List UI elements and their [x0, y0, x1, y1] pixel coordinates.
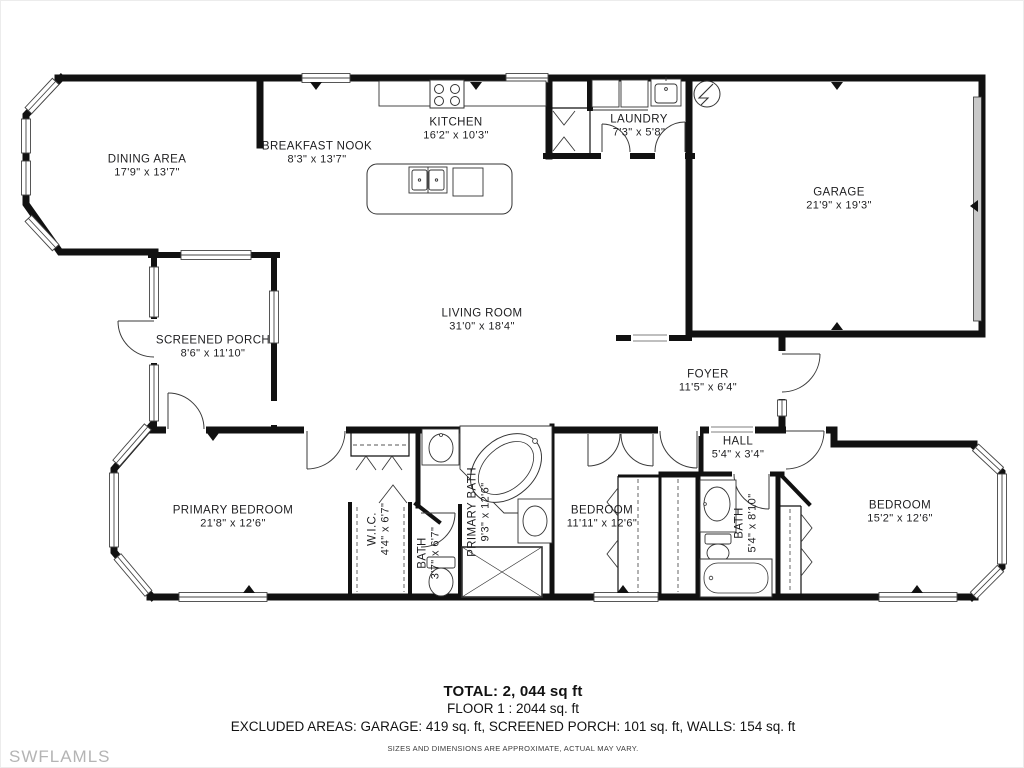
washer-icon: [592, 80, 619, 107]
room-label-bedroom-3: BEDROOM15'2" x 12'6": [867, 500, 933, 525]
porch-side-door: [118, 321, 154, 357]
vanity-sink-icon: [422, 429, 459, 465]
island-sink-icon: [409, 167, 447, 193]
stove-icon: [430, 80, 464, 108]
room-label-bath-2: BATH3'7" x 6'7": [417, 527, 442, 580]
front-door-sidelight: [778, 400, 787, 416]
room-label-breakfast-nook: BREAKFAST NOOK8'3" x 13'7": [262, 141, 372, 166]
island-cooktop: [453, 168, 483, 196]
room-label-hall: HALL5'4" x 3'4": [712, 436, 765, 461]
room-label-kitchen: KITCHEN16'2" x 10'3": [423, 117, 489, 142]
room-label-bedroom-2: BEDROOM11'11" x 12'6": [567, 505, 637, 530]
floor-area-text: FLOOR 1 : 2044 sq. ft: [1, 701, 1024, 716]
room-label-laundry: LAUNDRY7'3" x 5'8": [610, 114, 668, 139]
laundry-fixtures: [592, 77, 681, 110]
laundry-sink-icon: [651, 77, 681, 106]
room-label-garage: GARAGE21'9" x 19'3": [806, 187, 872, 212]
total-area-text: TOTAL: 2, 044 sq ft: [1, 683, 1024, 700]
hall-bathtub-icon: [700, 559, 772, 597]
hall-toilet-icon: [705, 534, 731, 562]
bedroom2-closet-doors: [588, 434, 653, 466]
hall-bath-sink-icon: [700, 480, 736, 532]
bedroom2-door: [660, 431, 697, 468]
room-label-primary-bedroom: PRIMARY BEDROOM21'8" x 12'6": [173, 505, 294, 530]
primary-bedroom-door: [307, 431, 345, 469]
floor-plan-drawing: [1, 1, 1024, 768]
room-label-living-room: LIVING ROOM31'0" x 18'4": [441, 308, 522, 333]
room-label-primary-bath: PRIMARY BATH9'3" x 12'6": [467, 467, 492, 557]
room-label-hall-bath: BATH5'4" x 8'10": [734, 493, 759, 552]
room-label-wic: W.I.C.4'4" x 6'7": [367, 503, 392, 556]
porch-bottom-door: [168, 393, 204, 429]
dryer-icon: [621, 80, 648, 107]
disclaimer-text: SIZES AND DIMENSIONS ARE APPROXIMATE, AC…: [1, 744, 1024, 753]
room-label-screened-porch: SCREENED PORCH8'6" x 11'10": [156, 335, 270, 360]
room-label-foyer: FOYER11'5" x 6'4": [679, 369, 737, 394]
floor-plan-page: DINING AREA17'9" x 13'7" BREAKFAST NOOK8…: [0, 0, 1024, 768]
bedroom3-door: [786, 431, 824, 469]
excluded-areas-text: EXCLUDED AREAS: GARAGE: 419 sq. ft, SCRE…: [1, 719, 1024, 734]
electrical-panel-icon: [694, 81, 720, 107]
room-label-dining: DINING AREA17'9" x 13'7": [108, 154, 187, 179]
vanity-sink-2-icon: [518, 499, 552, 543]
kitchen-island: [367, 164, 512, 214]
watermark-swflamls: SWFLAMLS: [9, 747, 111, 767]
